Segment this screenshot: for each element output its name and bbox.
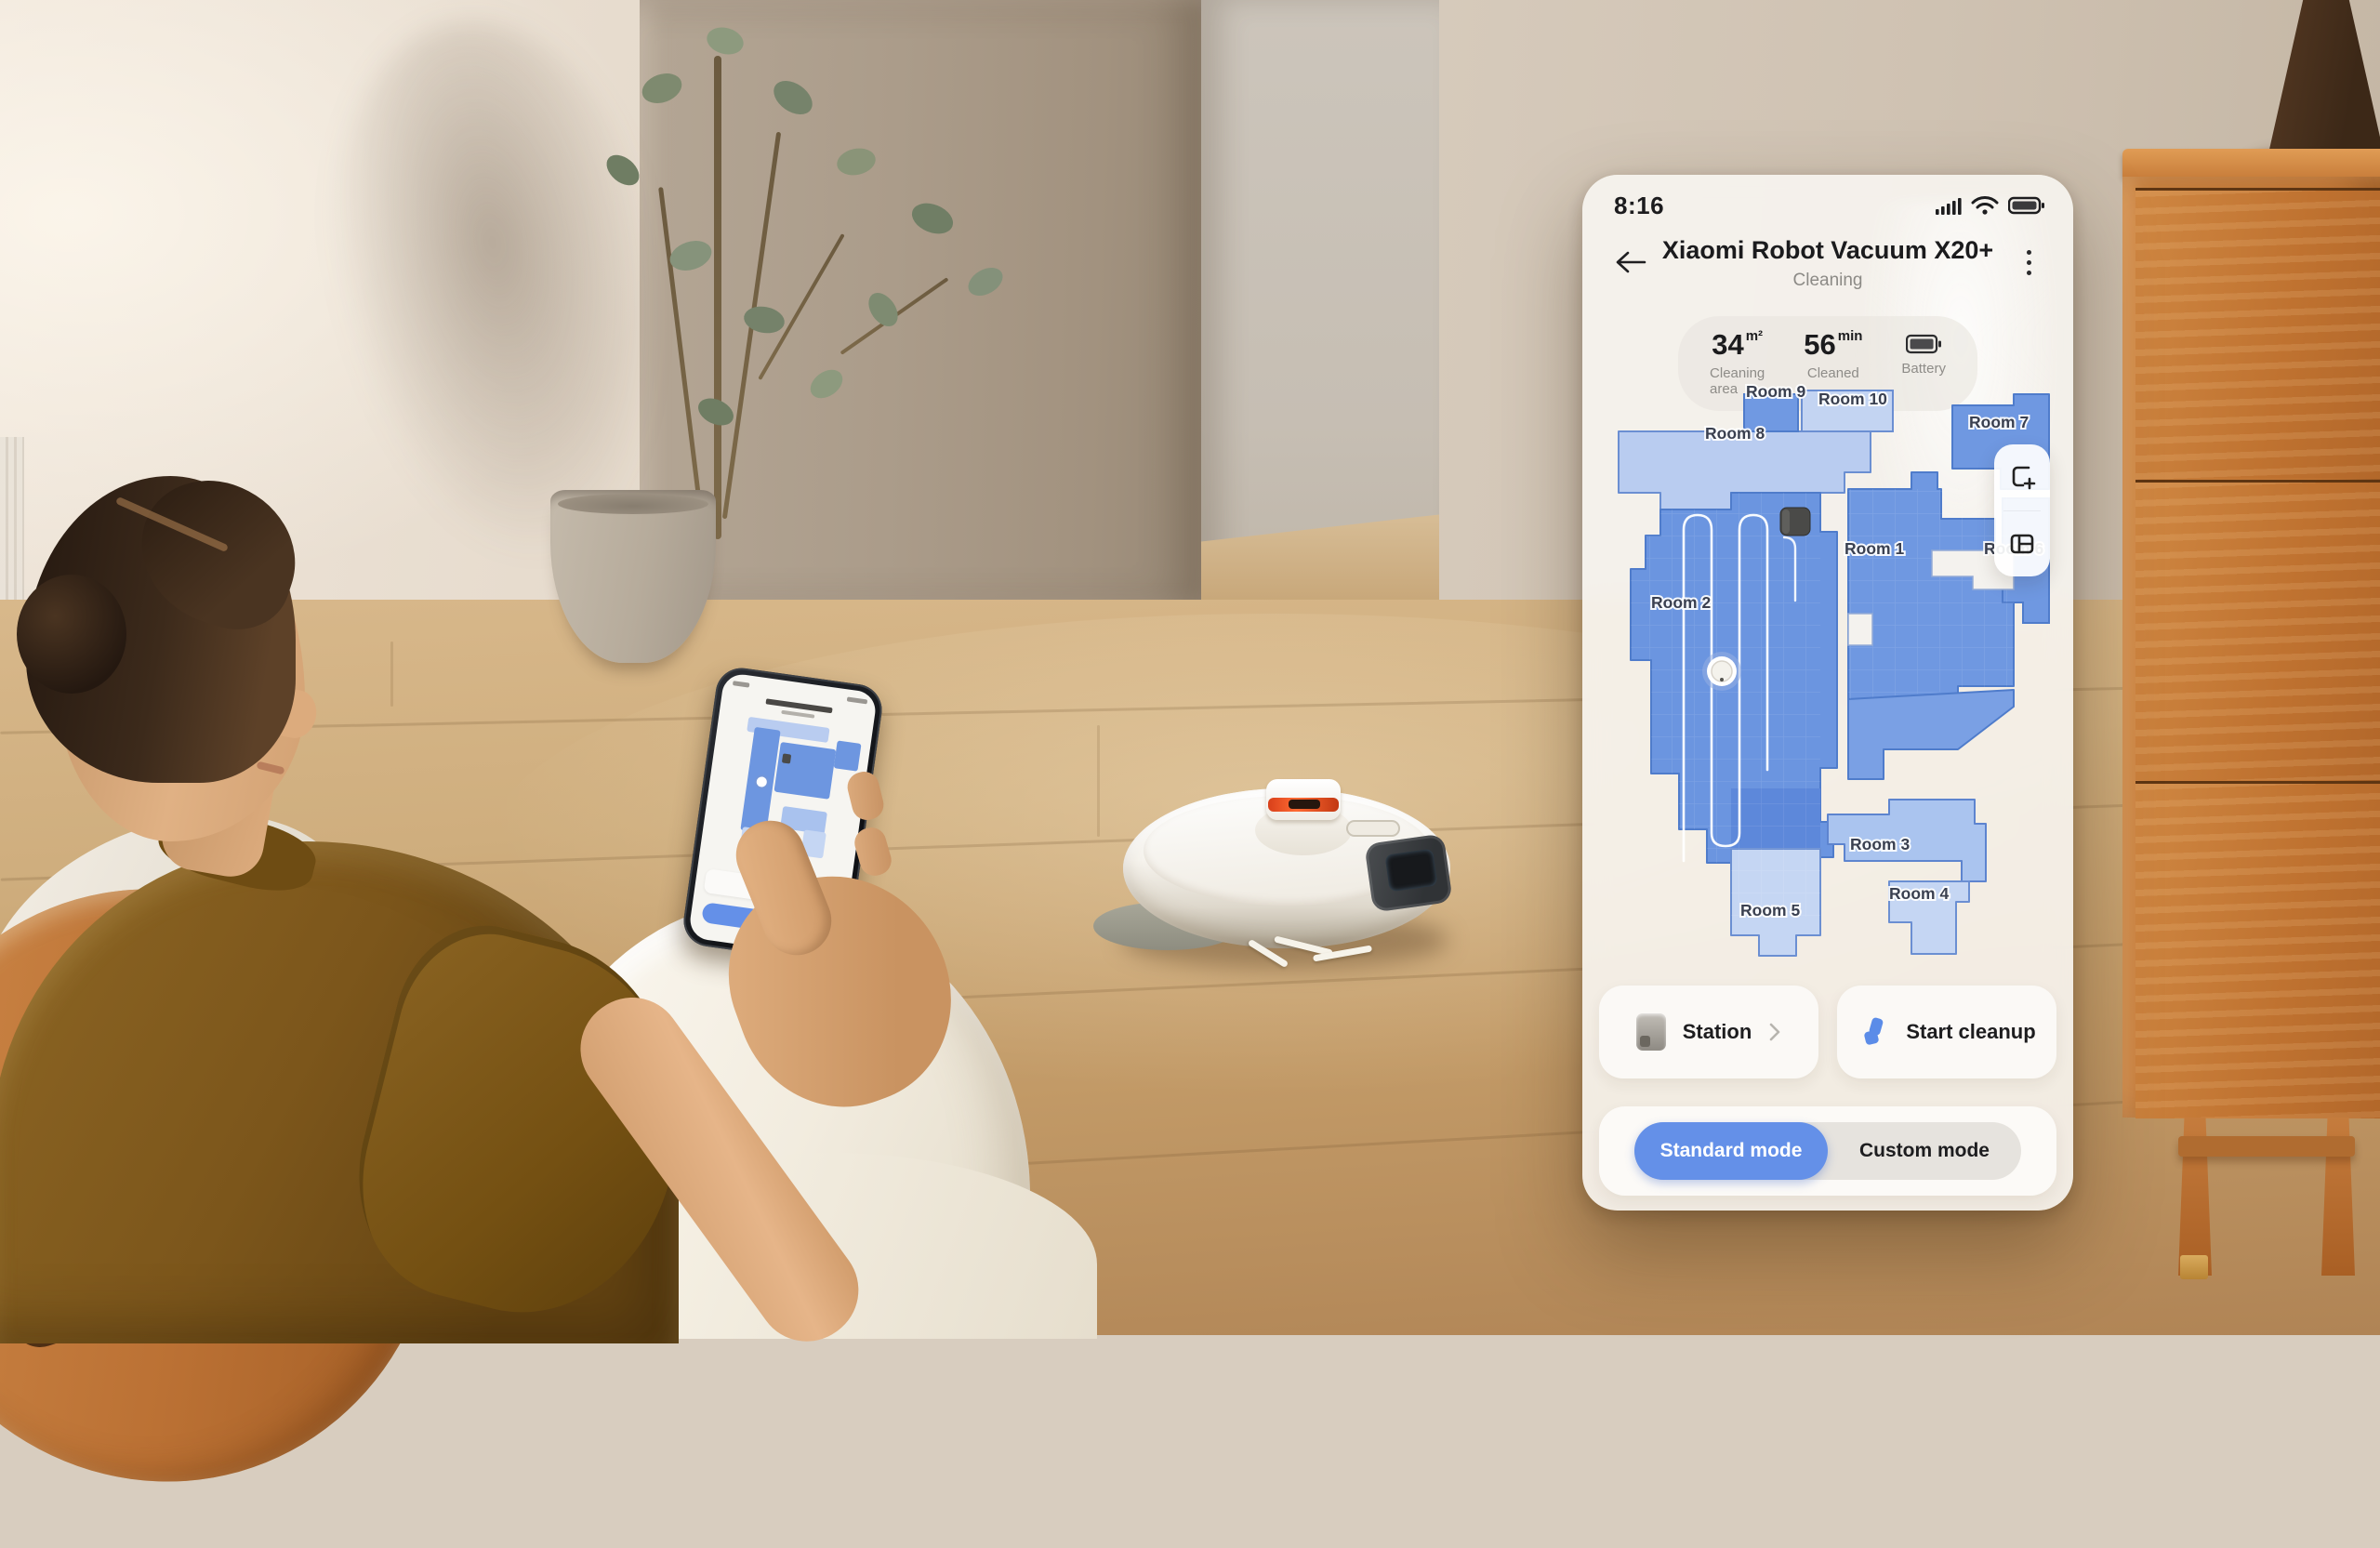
room-label: Room 4 <box>1889 884 1949 903</box>
map-svg: Room 9 Room 10 Room 7 Room 8 Room 1 Room… <box>1605 379 2051 965</box>
header: Xiaomi Robot Vacuum X20+ Cleaning <box>1582 229 2073 303</box>
add-map-icon <box>2008 463 2036 491</box>
station-label: Station <box>1683 1020 1752 1044</box>
wooden-cabinet <box>2122 149 2380 1162</box>
mini-status-time <box>733 681 750 687</box>
status-bar: 8:16 <box>1614 190 2045 221</box>
app-panel: 8:16 <box>1582 175 2073 1211</box>
mini-room <box>773 742 836 800</box>
add-map-button[interactable] <box>1994 444 2050 510</box>
cabinet-foot <box>2180 1255 2208 1279</box>
mini-station <box>782 753 791 763</box>
battery-icon <box>2008 195 2045 216</box>
mode-standard[interactable]: Standard mode <box>1634 1122 1828 1180</box>
battery-label: Battery <box>1901 361 1946 377</box>
split-room-icon <box>2008 530 2036 558</box>
robot-lidar-slot <box>1289 800 1320 809</box>
mini-status-icons <box>847 696 867 704</box>
area-unit: m² <box>1746 328 1763 344</box>
robot-vacuum <box>1116 772 1460 976</box>
radiator <box>0 437 24 609</box>
map-tool-buttons <box>1994 444 2050 576</box>
back-button[interactable] <box>1610 242 1651 283</box>
plant-stem <box>714 56 721 539</box>
cabinet-drawer <box>2135 480 2380 780</box>
back-arrow-icon <box>1615 249 1646 275</box>
kebab-dot <box>2027 250 2031 255</box>
more-menu-button[interactable] <box>2008 242 2049 283</box>
room-label: Room 8 <box>1705 424 1765 443</box>
area-value: 34 <box>1712 330 1743 359</box>
mode-card: Standard mode Custom mode <box>1599 1106 2056 1196</box>
header-titles: Xiaomi Robot Vacuum X20+ Cleaning <box>1647 229 2008 291</box>
time-unit: min <box>1838 328 1863 344</box>
page-subtitle: Cleaning <box>1647 271 2008 291</box>
floor-plank-seam <box>1097 725 1100 837</box>
stat-cleaned-time: 56 min Cleaned <box>1804 330 1862 381</box>
mini-title <box>765 698 832 713</box>
dock-station-highlight <box>1782 509 1790 534</box>
mini-room <box>834 740 862 771</box>
hallway-wall <box>1201 0 1439 606</box>
kebab-dot <box>2027 271 2031 275</box>
station-button[interactable]: Station <box>1599 986 1818 1078</box>
page-title: Xiaomi Robot Vacuum X20+ <box>1647 236 2008 265</box>
cabinet-top <box>2122 149 2380 177</box>
cabinet-rail <box>2178 1136 2355 1157</box>
status-icons <box>1936 195 2045 216</box>
robot-side-screen <box>1384 849 1437 893</box>
stat-battery: Battery <box>1901 330 1946 377</box>
map-grid-overlay <box>1631 493 1820 917</box>
chevron-right-icon <box>1768 1022 1781 1042</box>
robot-position-dot <box>1720 678 1724 681</box>
station-dock-icon <box>1636 1013 1666 1051</box>
room-label: Room 5 <box>1740 901 1800 920</box>
mode-toggle: Standard mode Custom mode <box>1634 1122 2021 1180</box>
mode-custom[interactable]: Custom mode <box>1828 1122 2021 1180</box>
action-cards: Station Start cleanup <box>1599 986 2056 1078</box>
room-label: Room 10 <box>1818 390 1887 408</box>
room-label: Room 2 <box>1651 593 1711 612</box>
start-cleanup-icon <box>1858 1016 1889 1048</box>
battery-status-icon <box>1906 334 1941 354</box>
room-label: Room 9 <box>1746 382 1805 401</box>
mini-subtitle <box>781 710 814 719</box>
room-label: Room 1 <box>1844 539 1904 558</box>
signal-icon <box>1936 195 1962 216</box>
room-label: Room 3 <box>1850 835 1910 853</box>
woman-hair-bun <box>17 575 126 694</box>
map-furniture-cutout <box>1848 614 1872 645</box>
cabinet-drawer <box>2135 781 2380 1118</box>
cabinet-drawer <box>2135 188 2380 479</box>
cleaning-map[interactable]: Room 9 Room 10 Room 7 Room 8 Room 1 Room… <box>1605 379 2051 965</box>
start-cleanup-label: Start cleanup <box>1906 1020 2035 1044</box>
time-value: 56 <box>1804 330 1835 359</box>
kebab-dot <box>2027 260 2031 265</box>
room-label: Room 7 <box>1969 413 2029 431</box>
map-room1-lower-shape <box>1848 690 2014 779</box>
map-grid-overlay <box>1848 489 2014 699</box>
floor-plank-seam <box>390 642 393 707</box>
status-time: 8:16 <box>1614 192 1664 220</box>
wifi-icon <box>1971 195 1999 216</box>
start-cleanup-button[interactable]: Start cleanup <box>1837 986 2056 1078</box>
robot-buttons <box>1346 820 1400 837</box>
split-room-button[interactable] <box>1994 511 2050 577</box>
